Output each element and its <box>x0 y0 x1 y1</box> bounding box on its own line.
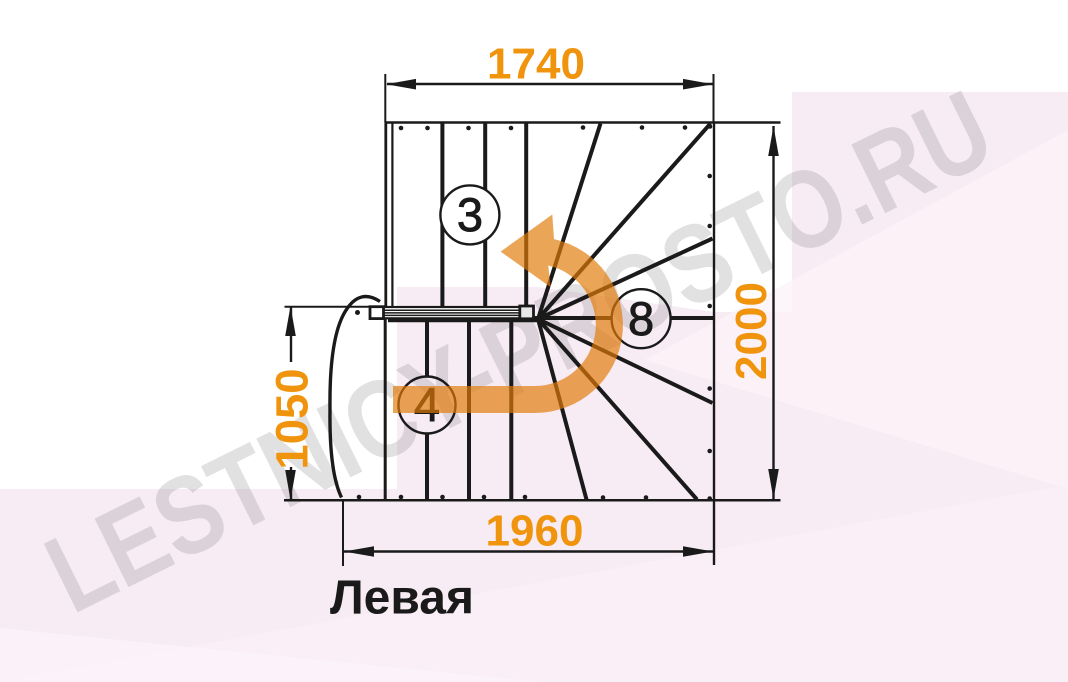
svg-text:2000: 2000 <box>727 282 776 380</box>
svg-text:1740: 1740 <box>487 40 585 89</box>
svg-text:Левая: Левая <box>330 572 474 625</box>
svg-text:1960: 1960 <box>486 507 584 556</box>
svg-text:3: 3 <box>457 188 483 241</box>
svg-text:8: 8 <box>628 292 654 345</box>
svg-text:1050: 1050 <box>267 368 318 469</box>
